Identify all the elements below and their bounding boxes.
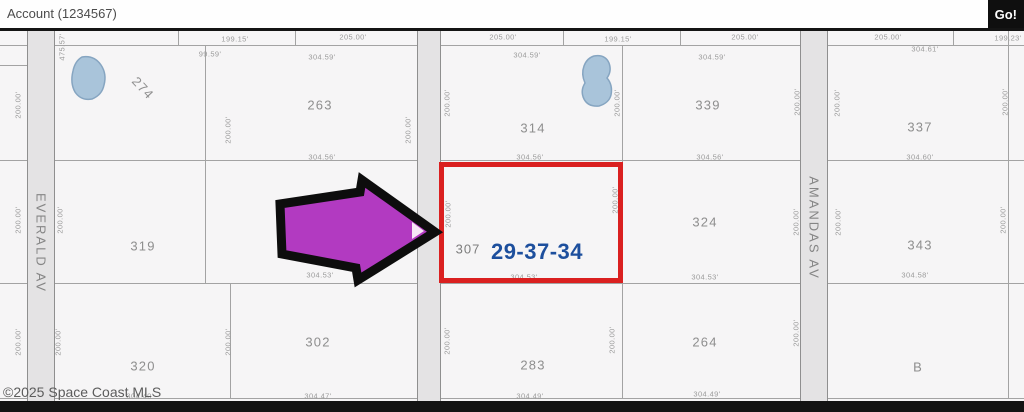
dimension-label: 99.59' [199, 50, 222, 59]
dimension-label: 304.56' [308, 153, 335, 162]
boundary-line [680, 31, 681, 45]
dimension-label: 304.56' [516, 153, 543, 162]
dimension-label: 200.00' [608, 326, 617, 353]
dimension-label: 304.49' [693, 390, 720, 399]
dimension-label: 200.00' [793, 88, 802, 115]
dimension-label: 200.00' [14, 206, 23, 233]
parcel-label-324: 324 [692, 215, 717, 230]
go-button[interactable]: Go! [988, 0, 1024, 28]
dimension-label: 205.00' [731, 33, 758, 42]
parcel-label-343: 343 [907, 238, 932, 253]
dimension-label: 205.00' [339, 33, 366, 42]
selected-parcel-section: 29-37-34 [491, 239, 583, 265]
boundary-line [0, 65, 28, 66]
dimension-label: 304.56' [696, 153, 723, 162]
dimension-label: 200.00' [224, 116, 233, 143]
dimension-label: 200.00' [792, 208, 801, 235]
dimension-label: 200.00' [443, 89, 452, 116]
street-name-label: AMANDAS AV [807, 176, 822, 280]
dimension-label: 200.00' [1001, 88, 1010, 115]
dimension-label: 304.60' [906, 153, 933, 162]
dimension-label: 205.00' [489, 33, 516, 42]
boundary-line [953, 31, 954, 45]
copyright-text: ©2025 Space Coast MLS [3, 384, 161, 400]
parcel-label-319: 319 [130, 239, 155, 254]
dimension-label: 304.53' [691, 273, 718, 282]
parcel-label-302: 302 [305, 335, 330, 350]
dimension-label: 199.15' [221, 35, 248, 44]
dimension-label: 200.00' [224, 328, 233, 355]
parcel-label-314: 314 [520, 121, 545, 136]
dimension-label: 205.00' [874, 33, 901, 42]
boundary-line [178, 31, 179, 45]
dimension-label: 200.00' [14, 328, 23, 355]
dimension-label: 200.00' [999, 206, 1008, 233]
dimension-label: 304.61' [911, 45, 938, 54]
parcel-label-283: 283 [520, 358, 545, 373]
dimension-label: 200.00' [792, 319, 801, 346]
pointer-arrow-icon [253, 165, 448, 295]
road-everald-av: EVERALD AV [27, 31, 55, 402]
dimension-label: 200.00' [404, 116, 413, 143]
parcel-label-263: 263 [307, 98, 332, 113]
boundary-line [0, 283, 1024, 284]
dimension-label: 200.00' [54, 328, 63, 355]
dimension-label: 475.57' [58, 33, 67, 60]
parcel-label-339: 339 [695, 98, 720, 113]
parcel-label-B: B [913, 360, 923, 375]
bottom-bar [0, 401, 1024, 412]
dimension-label: 304.59' [513, 51, 540, 60]
parcel-label-337: 337 [907, 120, 932, 135]
road-amandas-av: AMANDAS AV [800, 31, 828, 402]
street-name-label: EVERALD AV [34, 193, 49, 293]
dimension-label: 200.00' [613, 89, 622, 116]
plat-map[interactable]: 307 29-37-34 ©2025 Space Coast MLS EVERA… [0, 0, 1024, 412]
dimension-label: 304.49' [516, 392, 543, 401]
dimension-label: 199.23' [994, 34, 1021, 43]
boundary-line [563, 31, 564, 45]
dimension-label: 304.59' [698, 53, 725, 62]
dimension-label: 200.00' [443, 327, 452, 354]
boundary-line [0, 160, 1024, 161]
boundary-line [295, 31, 296, 45]
account-label: Account (1234567) [0, 0, 117, 28]
parcel-label-320: 320 [130, 359, 155, 374]
dimension-label: 200.00' [833, 89, 842, 116]
dimension-label: 304.59' [308, 53, 335, 62]
selected-parcel-number: 307 [456, 242, 481, 257]
boundary-line [1008, 31, 1009, 398]
dimension-label: 304.47' [304, 392, 331, 401]
dimension-label: 200.00' [14, 91, 23, 118]
dimension-label: 200.00' [834, 208, 843, 235]
parcel-label-264: 264 [692, 335, 717, 350]
boundary-line [205, 45, 206, 283]
boundary-line [0, 45, 1024, 46]
dimension-label: 199.15' [604, 35, 631, 44]
dimension-label: 200.00' [56, 206, 65, 233]
toolbar: Account (1234567) Go! [0, 0, 1024, 31]
dimension-label: 304.58' [901, 271, 928, 280]
